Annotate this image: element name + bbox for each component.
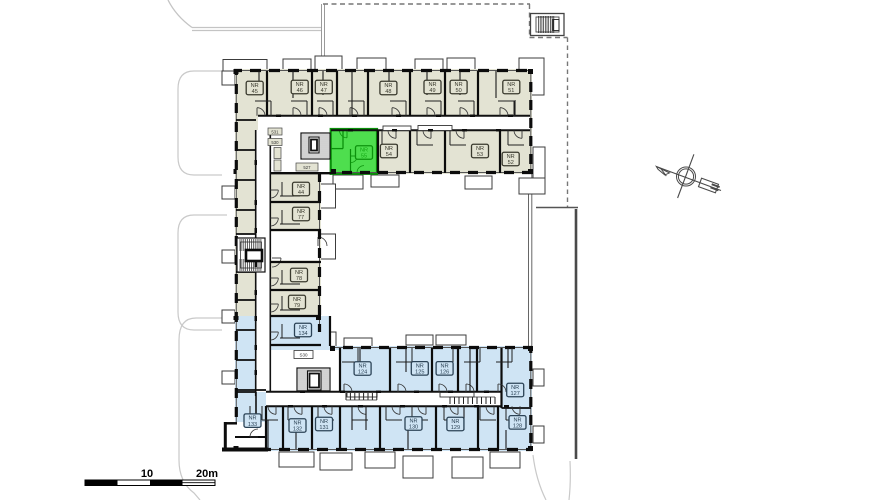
- svg-text:50: 50: [455, 88, 461, 94]
- svg-text:54: 54: [386, 152, 392, 158]
- svg-text:129: 129: [451, 425, 460, 431]
- svg-text:NR: NR: [297, 209, 305, 215]
- svg-text:NR: NR: [251, 83, 259, 89]
- svg-text:133: 133: [248, 422, 257, 428]
- svg-text:NR: NR: [409, 419, 417, 425]
- svg-text:45: 45: [252, 89, 258, 95]
- svg-text:NR: NR: [451, 419, 459, 425]
- svg-text:NR: NR: [360, 148, 368, 154]
- svg-text:55: 55: [361, 154, 367, 160]
- svg-text:48: 48: [385, 89, 391, 95]
- svg-text:46: 46: [297, 88, 303, 94]
- svg-text:NR: NR: [248, 416, 256, 422]
- svg-text:NR: NR: [297, 184, 305, 190]
- svg-text:NR: NR: [296, 82, 304, 88]
- svg-text:134: 134: [298, 331, 307, 337]
- svg-text:NR: NR: [416, 363, 424, 369]
- svg-text:78: 78: [296, 276, 302, 282]
- svg-text:NR: NR: [476, 146, 484, 152]
- svg-text:NR: NR: [299, 325, 307, 331]
- svg-text:NR: NR: [293, 421, 301, 427]
- svg-text:47: 47: [321, 88, 327, 94]
- svg-text:124: 124: [358, 370, 367, 376]
- svg-text:531: 531: [271, 129, 279, 134]
- svg-text:52: 52: [508, 160, 514, 166]
- svg-text:130: 130: [409, 425, 418, 431]
- svg-text:79: 79: [294, 303, 300, 309]
- svg-text:49: 49: [429, 88, 435, 94]
- svg-text:NR: NR: [455, 82, 463, 88]
- svg-text:53: 53: [477, 152, 483, 158]
- svg-text:127: 127: [511, 391, 520, 397]
- svg-text:51: 51: [508, 88, 514, 94]
- svg-text:NR: NR: [428, 82, 436, 88]
- svg-text:NR: NR: [384, 83, 392, 89]
- svg-text:NR: NR: [320, 419, 328, 425]
- svg-text:131: 131: [319, 425, 328, 431]
- svg-text:NR: NR: [511, 385, 519, 391]
- svg-text:44: 44: [298, 190, 304, 196]
- svg-text:NR: NR: [320, 82, 328, 88]
- svg-text:S30: S30: [299, 353, 308, 358]
- svg-text:132: 132: [293, 427, 302, 433]
- svg-text:77: 77: [298, 215, 304, 221]
- svg-text:128: 128: [513, 424, 522, 430]
- svg-text:20m: 20m: [196, 468, 218, 480]
- svg-text:126: 126: [440, 370, 449, 376]
- svg-text:NR: NR: [441, 363, 449, 369]
- svg-text:125: 125: [415, 370, 424, 376]
- svg-text:NR: NR: [507, 82, 515, 88]
- svg-text:530: 530: [271, 140, 279, 145]
- svg-text:527: 527: [303, 165, 311, 170]
- svg-text:NR: NR: [385, 146, 393, 152]
- svg-text:NR: NR: [507, 154, 515, 160]
- svg-text:NR: NR: [359, 364, 367, 370]
- svg-text:NR: NR: [513, 417, 521, 423]
- svg-text:NR: NR: [295, 270, 303, 276]
- svg-text:10: 10: [141, 468, 153, 480]
- svg-text:NR: NR: [293, 297, 301, 303]
